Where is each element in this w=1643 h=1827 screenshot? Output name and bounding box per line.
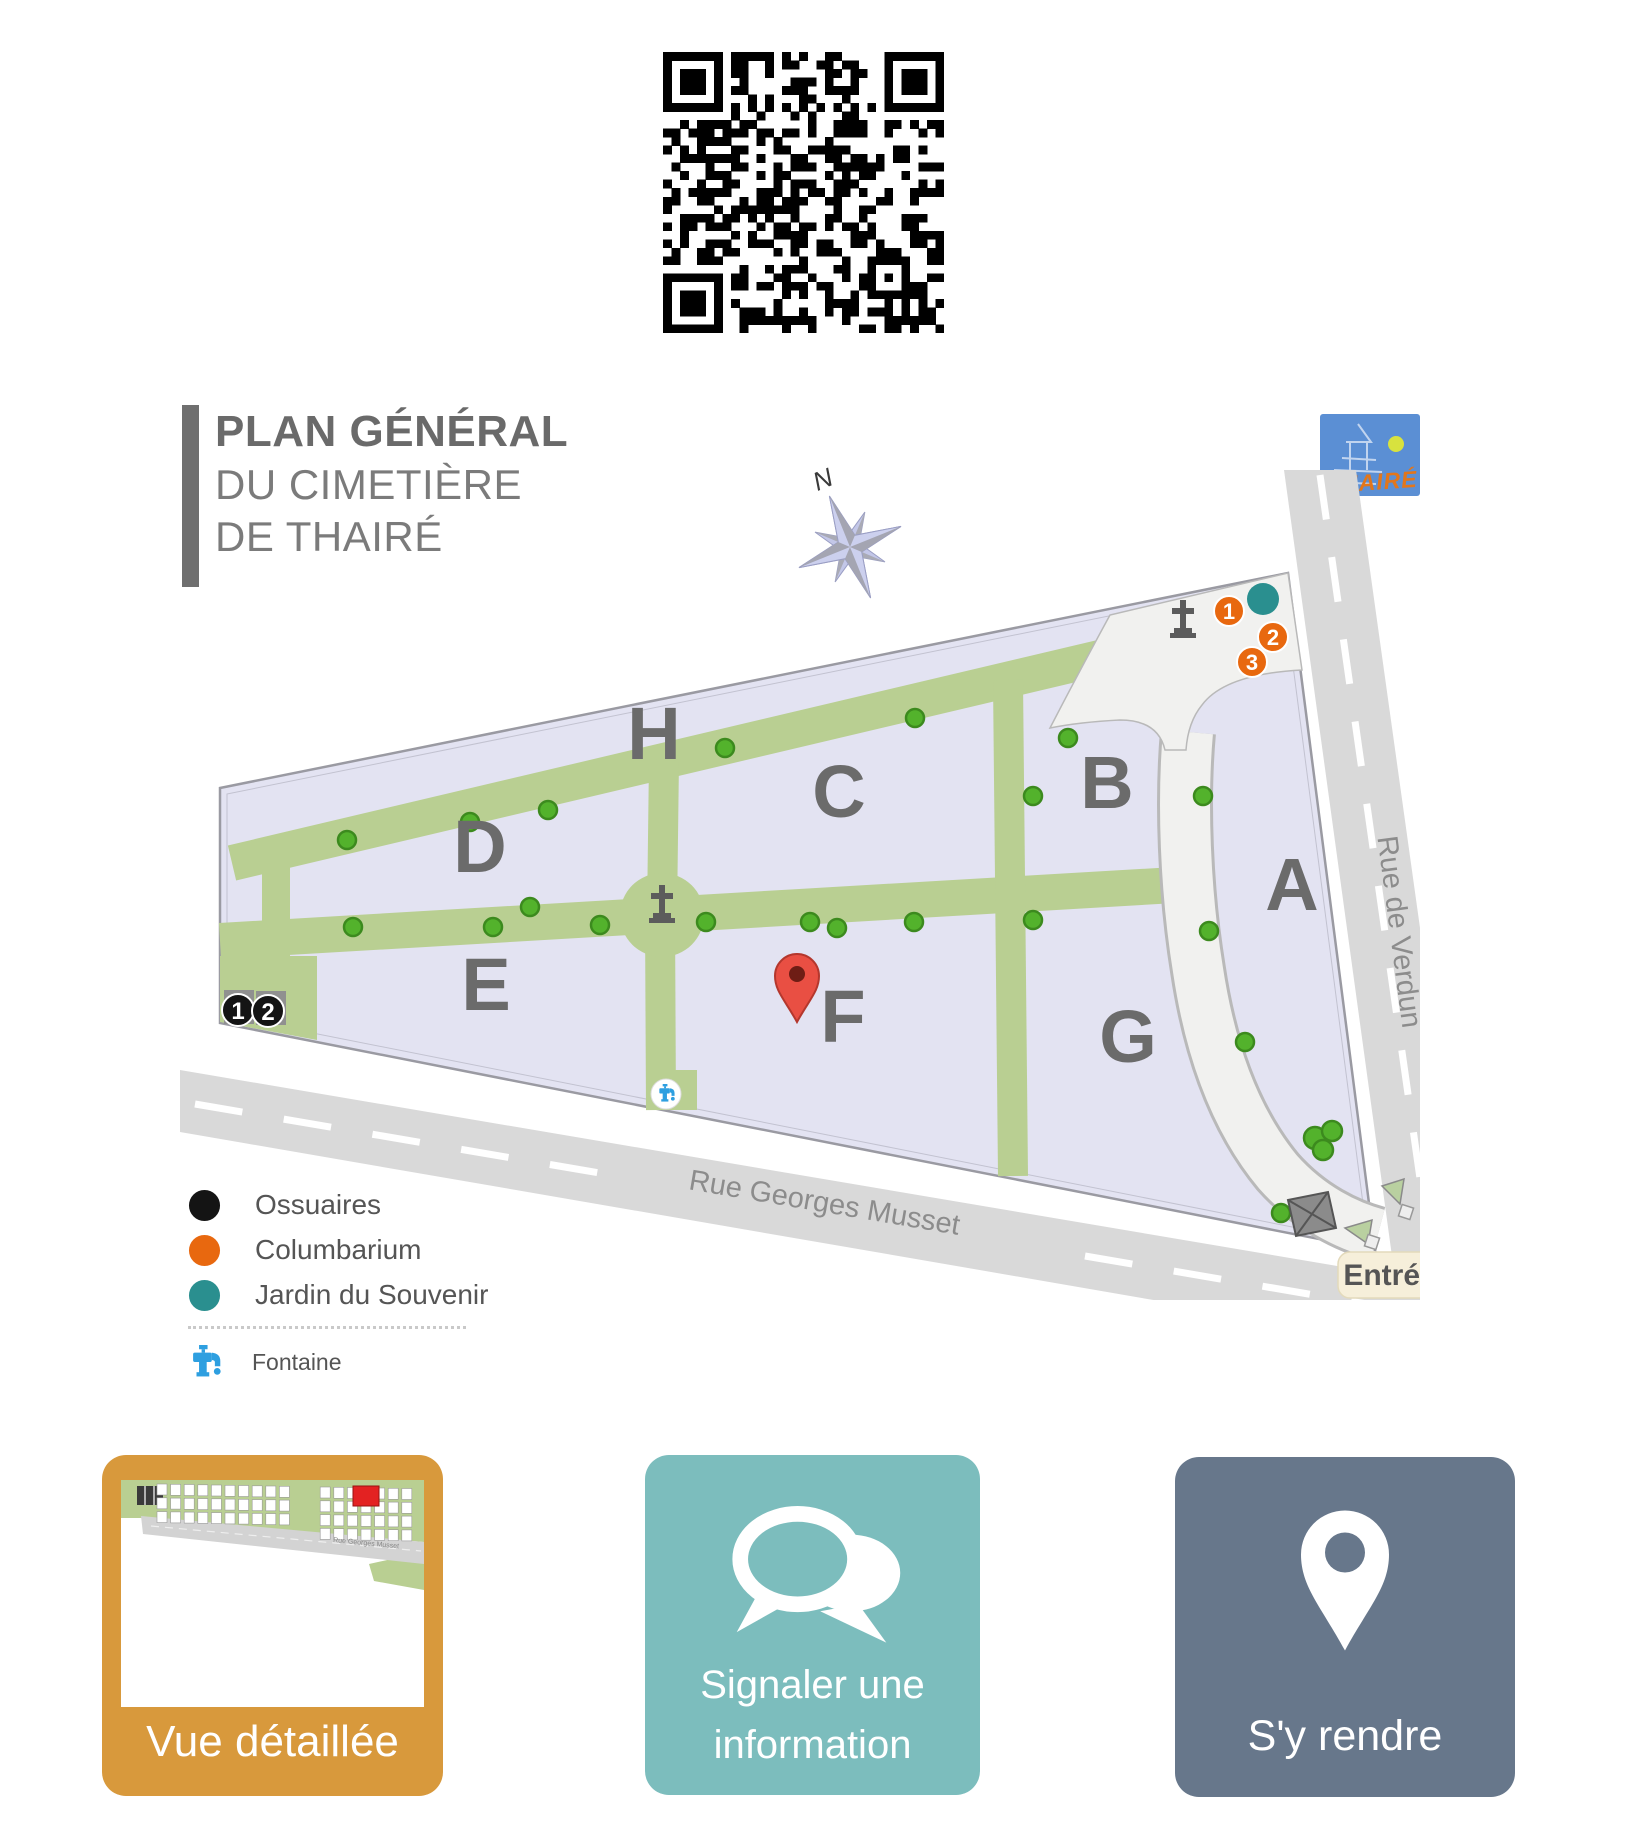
legend-label: Fontaine bbox=[252, 1349, 342, 1376]
jardin-du-souvenir-marker bbox=[1247, 583, 1279, 615]
jardin-dot-icon bbox=[188, 1279, 221, 1312]
legend-item-columbarium: Columbarium bbox=[188, 1231, 508, 1269]
ossuaires-dot-icon bbox=[188, 1189, 221, 1222]
legend-label: Ossuaires bbox=[255, 1189, 381, 1221]
detailed-view-button[interactable]: Rue Georges Musset Vue détaillée bbox=[102, 1455, 443, 1796]
section-label-b: B bbox=[1080, 741, 1133, 824]
ossuaire-marker-2: 2 bbox=[261, 999, 274, 1026]
ossuaire-marker-1: 1 bbox=[231, 998, 244, 1025]
legend: Ossuaires Columbarium Jardin du Souvenir… bbox=[188, 1186, 508, 1379]
fountain-icon bbox=[188, 1345, 222, 1379]
svg-text:Entrée: Entrée bbox=[1343, 1259, 1420, 1292]
mini-map-thumbnail: Rue Georges Musset bbox=[121, 1480, 424, 1707]
button-label: Vue détaillée bbox=[102, 1717, 443, 1767]
cemetery-map: Rue Georges Musset Rue de Verdun bbox=[180, 470, 1420, 1300]
legend-item-ossuaires: Ossuaires bbox=[188, 1186, 508, 1224]
legend-label: Jardin du Souvenir bbox=[255, 1279, 488, 1311]
section-label-h: H bbox=[627, 692, 680, 775]
qr-code bbox=[663, 52, 944, 333]
entrance-label: Entrée bbox=[1338, 1252, 1420, 1298]
legend-item-fontaine: Fontaine bbox=[188, 1345, 508, 1379]
fountain-marker bbox=[651, 1079, 681, 1109]
columbarium-marker-2: 2 bbox=[1267, 625, 1279, 650]
legend-item-jardin: Jardin du Souvenir bbox=[188, 1276, 508, 1314]
report-info-button[interactable]: Signaler une information bbox=[645, 1455, 980, 1795]
columbarium-dot-icon bbox=[188, 1234, 221, 1267]
legend-label: Columbarium bbox=[255, 1234, 422, 1266]
chat-icon bbox=[717, 1493, 913, 1653]
ossuaire-markers: 1 2 bbox=[222, 990, 286, 1027]
map-pin-icon bbox=[1285, 1492, 1405, 1657]
directions-button[interactable]: S'y rendre bbox=[1175, 1457, 1515, 1797]
section-label-g: G bbox=[1099, 995, 1157, 1078]
section-label-c: C bbox=[812, 750, 865, 833]
section-label-a: A bbox=[1265, 843, 1318, 926]
section-label-f: F bbox=[820, 975, 865, 1058]
title-line-1: PLAN GÉNÉRAL bbox=[215, 405, 568, 459]
section-label-e: E bbox=[461, 943, 510, 1026]
legend-divider bbox=[188, 1326, 466, 1329]
section-label-d: D bbox=[453, 805, 506, 888]
button-label: Signaler une information bbox=[645, 1655, 980, 1775]
button-label: S'y rendre bbox=[1175, 1712, 1515, 1761]
columbarium-marker-1: 1 bbox=[1223, 599, 1235, 624]
columbarium-marker-3: 3 bbox=[1246, 650, 1258, 675]
